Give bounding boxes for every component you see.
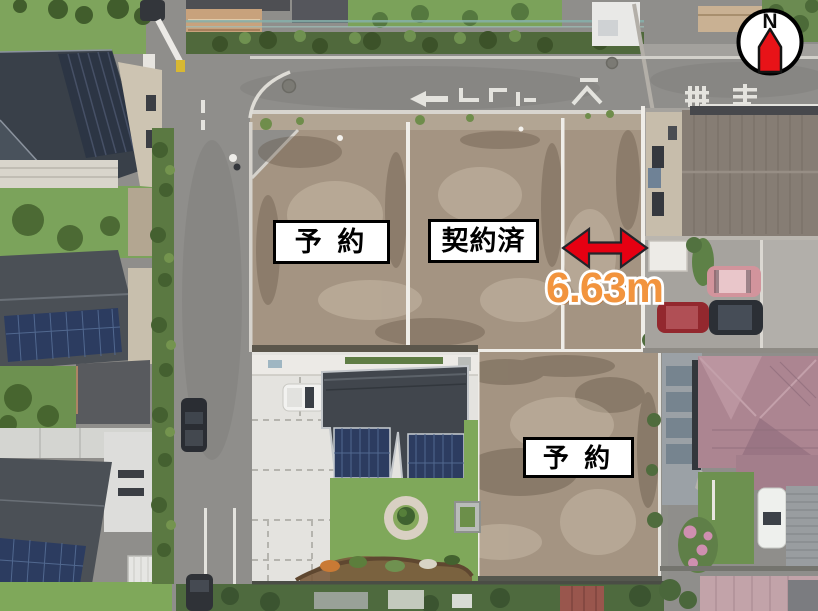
north-compass: N	[735, 6, 807, 78]
measurement-text: 6.63m	[546, 264, 663, 312]
lot-label-contracted: 契約済	[428, 219, 539, 263]
aerial-scene	[0, 0, 818, 611]
manhole-cover	[283, 80, 296, 93]
width-measurement: 6.63m 6.63m	[538, 262, 688, 314]
lot-label-reserved-1: 予 約	[273, 220, 390, 264]
garden-tree	[397, 507, 415, 525]
manhole-cover	[607, 58, 618, 69]
model-house-lot	[252, 345, 480, 605]
lot-label-reserved-2: 予 約	[523, 437, 634, 478]
south-strip	[176, 581, 664, 611]
pedestrian	[234, 164, 241, 171]
pedestrian	[229, 154, 237, 162]
aerial-site-photo: 予 約 契約済 予 約 6.63m 6.63m N	[0, 0, 818, 611]
white-van	[283, 384, 325, 411]
west-houses	[0, 20, 185, 611]
white-car	[758, 488, 786, 548]
